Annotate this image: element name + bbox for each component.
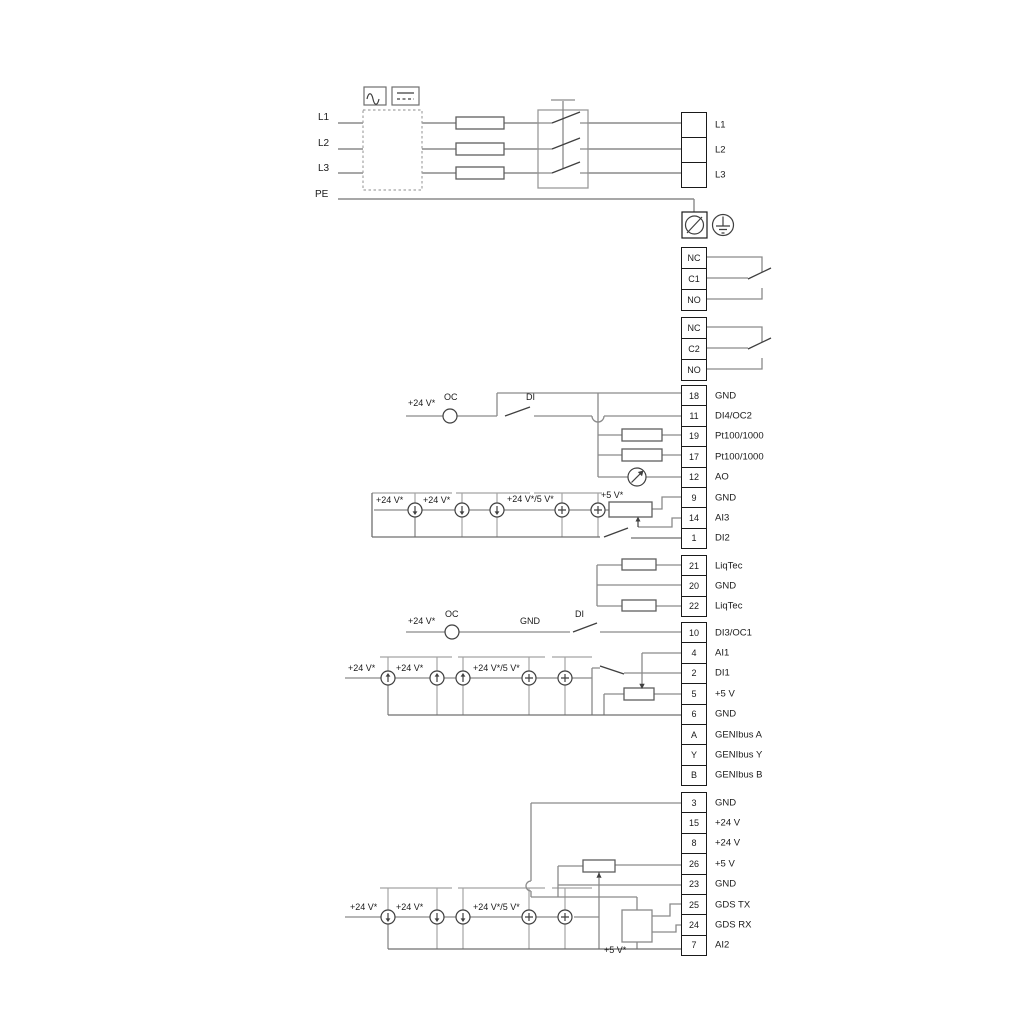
supply-label: +5 V* bbox=[601, 490, 623, 500]
terminal-label: Pt100/1000 bbox=[715, 431, 764, 442]
terminal-cell bbox=[681, 112, 707, 138]
relay-1-block: NC C1 NO bbox=[681, 247, 707, 311]
terminal-label: GND bbox=[715, 709, 736, 720]
supply-label: +24 V*/5 V* bbox=[473, 902, 520, 912]
terminal-row: 22 LiqTec bbox=[681, 596, 707, 617]
supply-label: +24 V* bbox=[348, 663, 375, 673]
terminal-label: GDS RX bbox=[715, 920, 751, 931]
supply-label: +24 V* bbox=[396, 663, 423, 673]
terminal-label: L1 bbox=[715, 120, 726, 131]
terminal-number: 7 bbox=[681, 935, 707, 956]
terminal-label: DI2 bbox=[715, 533, 730, 544]
terminal-label: GENIbus Y bbox=[715, 750, 762, 761]
terminal-row: 15 +24 V bbox=[681, 812, 707, 833]
terminal-row: L3 bbox=[681, 162, 707, 188]
terminal-number: 21 bbox=[681, 555, 707, 576]
terminal-row: 25 GDS TX bbox=[681, 894, 707, 915]
terminal-row: 18 GND bbox=[681, 385, 707, 406]
arrow-up-circle-icon bbox=[381, 671, 395, 685]
relay-cell: C1 bbox=[681, 268, 707, 290]
relay-row: NC bbox=[681, 247, 707, 269]
earth-ground-icon bbox=[713, 215, 734, 236]
terminal-row: 5 +5 V bbox=[681, 683, 707, 704]
terminal-label: GENIbus B bbox=[715, 770, 763, 781]
terminal-row: 17 Pt100/1000 bbox=[681, 446, 707, 467]
ai1-potentiometer bbox=[624, 684, 654, 700]
terminal-row: 2 DI1 bbox=[681, 663, 707, 684]
ai3-potentiometer bbox=[609, 502, 652, 527]
supply-label: +5 V* bbox=[604, 945, 626, 955]
di1-switch-blade bbox=[600, 666, 624, 674]
plus-circle-icon bbox=[555, 503, 569, 517]
ac-wave-icon bbox=[364, 87, 386, 105]
di3-switch-blade bbox=[573, 623, 597, 632]
terminal-label: GENIbus A bbox=[715, 729, 762, 740]
terminal-label: +5 V bbox=[715, 688, 735, 699]
supply-label: +24 V* bbox=[423, 495, 450, 505]
plus-circle-icon bbox=[591, 503, 605, 517]
terminal-label: AI3 bbox=[715, 513, 729, 524]
relay-row: C1 bbox=[681, 268, 707, 290]
terminal-row: Y GENIbus Y bbox=[681, 744, 707, 765]
terminal-row: 11 DI4/OC2 bbox=[681, 405, 707, 426]
supply-label: +24 V* bbox=[376, 495, 403, 505]
terminal-label: +24 V bbox=[715, 838, 740, 849]
terminal-number: 2 bbox=[681, 663, 707, 684]
terminal-number: 26 bbox=[681, 853, 707, 874]
supply-label: +24 V*/5 V* bbox=[473, 663, 520, 673]
terminal-row: B GENIbus B bbox=[681, 765, 707, 786]
terminal-label: DI1 bbox=[715, 668, 730, 679]
terminal-label: AI2 bbox=[715, 940, 729, 951]
terminal-number: 19 bbox=[681, 426, 707, 447]
terminal-label: LiqTec bbox=[715, 601, 742, 612]
ai2-potentiometer bbox=[583, 860, 615, 878]
terminal-number: 1 bbox=[681, 528, 707, 549]
open-collector-icon bbox=[445, 625, 459, 639]
rfi-filter-box bbox=[363, 110, 422, 190]
terminal-row: 8 +24 V bbox=[681, 833, 707, 854]
ground-terminal-icon bbox=[682, 212, 707, 238]
relay-cell: NO bbox=[681, 289, 707, 311]
terminal-label: GND bbox=[715, 797, 736, 808]
terminal-label: GDS TX bbox=[715, 899, 750, 910]
arrow-up-circle-icon bbox=[456, 671, 470, 685]
terminal-label: GND bbox=[715, 492, 736, 503]
arrow-down-circle-icon bbox=[408, 503, 422, 517]
terminal-cell bbox=[681, 162, 707, 188]
gnd-label: GND bbox=[520, 616, 540, 626]
terminal-label: GND bbox=[715, 581, 736, 592]
terminal-number: 3 bbox=[681, 792, 707, 813]
terminal-number: 4 bbox=[681, 642, 707, 663]
terminal-number: Y bbox=[681, 744, 707, 765]
di-label: DI bbox=[526, 392, 535, 402]
terminal-number: 5 bbox=[681, 683, 707, 704]
dc-lines-icon bbox=[392, 87, 419, 105]
terminal-row: 4 AI1 bbox=[681, 642, 707, 663]
di-label: DI bbox=[575, 609, 584, 619]
terminal-label: LiqTec bbox=[715, 560, 742, 571]
terminal-row: 10 DI3/OC1 bbox=[681, 622, 707, 643]
power-input-label-pe: PE bbox=[315, 189, 328, 200]
terminal-row: 14 AI3 bbox=[681, 507, 707, 528]
terminal-number: 22 bbox=[681, 596, 707, 617]
terminal-number: 14 bbox=[681, 507, 707, 528]
terminal-row: 3 GND bbox=[681, 792, 707, 813]
io-terminal-block-1: 18 GND 11 DI4/OC2 19 Pt100/1000 17 Pt100… bbox=[681, 385, 707, 549]
meter-arrow-circle-icon bbox=[628, 468, 646, 486]
plus-circle-icon bbox=[558, 671, 572, 685]
oc-label: OC bbox=[444, 392, 458, 402]
terminal-number: 8 bbox=[681, 833, 707, 854]
terminal-number: A bbox=[681, 724, 707, 745]
relay-cell: NC bbox=[681, 247, 707, 269]
terminal-row: A GENIbus A bbox=[681, 724, 707, 745]
di2-switch-blade bbox=[604, 528, 628, 537]
supply-label: +24 V*/5 V* bbox=[507, 494, 554, 504]
power-terminal-block: L1 L2 L3 bbox=[681, 112, 707, 188]
terminal-row: 26 +5 V bbox=[681, 853, 707, 874]
terminal-row: 23 GND bbox=[681, 874, 707, 895]
mains-wires bbox=[338, 123, 694, 212]
terminal-label: L2 bbox=[715, 145, 726, 156]
relay-row: NC bbox=[681, 317, 707, 339]
relay-contact-2 bbox=[707, 327, 771, 369]
terminal-cell bbox=[681, 137, 707, 163]
terminal-row: 6 GND bbox=[681, 704, 707, 725]
terminal-number: 12 bbox=[681, 467, 707, 488]
arrow-down-circle-icon bbox=[490, 503, 504, 517]
terminal-row: 7 AI2 bbox=[681, 935, 707, 956]
terminal-label: +24 V bbox=[715, 818, 740, 829]
terminal-row: 21 LiqTec bbox=[681, 555, 707, 576]
terminal-label: Pt100/1000 bbox=[715, 451, 764, 462]
terminal-number: 11 bbox=[681, 405, 707, 426]
terminal-number: 9 bbox=[681, 487, 707, 508]
terminal-number: B bbox=[681, 765, 707, 786]
terminal-label: AI1 bbox=[715, 648, 729, 659]
wiring-svg bbox=[0, 0, 1024, 1024]
relay-row: NO bbox=[681, 289, 707, 311]
arrow-down-circle-icon bbox=[430, 910, 444, 924]
supply-label: +24 V* bbox=[350, 902, 377, 912]
terminal-number: 24 bbox=[681, 914, 707, 935]
arrow-down-circle-icon bbox=[456, 910, 470, 924]
relay-cell: NO bbox=[681, 359, 707, 381]
relay-cell: C2 bbox=[681, 338, 707, 360]
fuses bbox=[456, 117, 504, 179]
terminal-label: DI4/OC2 bbox=[715, 411, 752, 422]
terminal-number: 17 bbox=[681, 446, 707, 467]
terminal-row: 19 Pt100/1000 bbox=[681, 426, 707, 447]
terminal-row: L1 bbox=[681, 112, 707, 138]
arrow-up-circle-icon bbox=[430, 671, 444, 685]
relay-row: NO bbox=[681, 359, 707, 381]
power-input-label-l2: L2 bbox=[318, 138, 329, 149]
terminal-number: 15 bbox=[681, 812, 707, 833]
supply-label: +24 V* bbox=[408, 616, 435, 626]
terminal-number: 20 bbox=[681, 575, 707, 596]
io-terminal-block-2: 10 DI3/OC1 4 AI1 2 DI1 5 +5 V 6 GND A GE… bbox=[681, 622, 707, 786]
open-collector-icon bbox=[443, 409, 457, 423]
terminal-label: DI3/OC1 bbox=[715, 627, 752, 638]
terminal-number: 18 bbox=[681, 385, 707, 406]
terminal-label: +5 V bbox=[715, 858, 735, 869]
gds-sensor-box bbox=[622, 910, 652, 942]
terminal-row: 9 GND bbox=[681, 487, 707, 508]
supply-label: +24 V* bbox=[396, 902, 423, 912]
pt100-sensors bbox=[622, 429, 662, 461]
terminal-label: GND bbox=[715, 390, 736, 401]
terminal-number: 10 bbox=[681, 622, 707, 643]
main-switch bbox=[538, 100, 588, 188]
plus-circle-icon bbox=[522, 671, 536, 685]
arrow-down-circle-icon bbox=[455, 503, 469, 517]
power-input-label-l3: L3 bbox=[318, 163, 329, 174]
plus-circle-icon bbox=[558, 910, 572, 924]
terminal-row: 24 GDS RX bbox=[681, 914, 707, 935]
io-terminal-block-3: 3 GND 15 +24 V 8 +24 V 26 +5 V 23 GND 25… bbox=[681, 792, 707, 956]
terminal-number: 25 bbox=[681, 894, 707, 915]
relay-2-block: NC C2 NO bbox=[681, 317, 707, 381]
plus-circle-icon bbox=[522, 910, 536, 924]
liqtec-terminal-block: 21 LiqTec 20 GND 22 LiqTec bbox=[681, 555, 707, 617]
di4-switch-blade bbox=[505, 407, 530, 416]
terminal-label: GND bbox=[715, 879, 736, 890]
relay-contact-1 bbox=[707, 257, 771, 299]
terminal-row: 12 AO bbox=[681, 467, 707, 488]
terminal-row: 20 GND bbox=[681, 575, 707, 596]
terminal-number: 6 bbox=[681, 704, 707, 725]
terminal-number: 23 bbox=[681, 874, 707, 895]
arrow-down-circle-icon bbox=[381, 910, 395, 924]
power-input-label-l1: L1 bbox=[318, 112, 329, 123]
wiring-diagram: L1 L2 L3 PE L1 L2 L3 NC C1 NO NC bbox=[0, 0, 1024, 1024]
terminal-row: L2 bbox=[681, 137, 707, 163]
relay-cell: NC bbox=[681, 317, 707, 339]
oc-label: OC bbox=[445, 609, 459, 619]
supply-label: +24 V* bbox=[408, 398, 435, 408]
relay-row: C2 bbox=[681, 338, 707, 360]
terminal-label: L3 bbox=[715, 170, 726, 181]
terminal-row: 1 DI2 bbox=[681, 528, 707, 549]
terminal-label: AO bbox=[715, 472, 729, 483]
